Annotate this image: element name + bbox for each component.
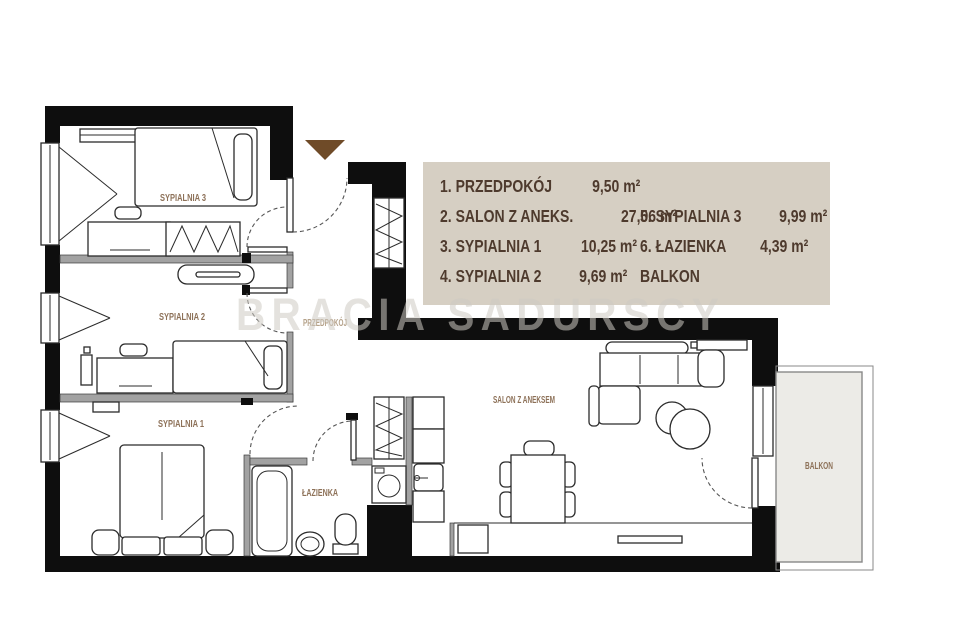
label-sypialnia2: SYPIALNIA 2 <box>159 311 205 323</box>
legend-item: BALKON <box>640 261 808 291</box>
window-balcony <box>753 386 773 456</box>
legend-item-area: 4,39 m² <box>760 236 808 257</box>
nightstand <box>206 530 233 555</box>
jamb-cap-1 <box>242 253 251 263</box>
partition-kitchen <box>406 397 412 505</box>
legend-item-label: 6. ŁAZIENKA <box>640 236 726 257</box>
pillow <box>122 537 160 555</box>
label-salon: SALON Z ANEKSEM <box>493 394 555 406</box>
door-syp2 <box>242 285 287 333</box>
chair <box>115 207 141 219</box>
pouf <box>670 409 710 449</box>
wall-top <box>45 106 287 126</box>
legend-item: 4. SYPIALNIA 2 9,69 m² <box>440 261 626 291</box>
legend-item-label: 2. SALON Z ANEKS. <box>440 206 573 227</box>
label-sypialnia1: SYPIALNIA 1 <box>158 418 204 430</box>
wall-entry-right <box>348 162 406 184</box>
wall-left-4 <box>45 462 60 572</box>
nightstand <box>92 530 119 555</box>
label-przedpokoj: PRZEDPOKÓJ <box>303 316 347 329</box>
door-syp3 <box>247 207 287 252</box>
counter <box>413 429 444 463</box>
wardrobe <box>166 222 240 256</box>
bathtub <box>252 466 292 556</box>
radiator <box>93 402 119 412</box>
partition-bath-top-left <box>250 458 307 465</box>
partition-syp1-bath <box>244 455 250 556</box>
window-syp1 <box>41 410 110 462</box>
legend-col-2: 5. SYPIALNIA 3 9,99 m² 6. ŁAZIENKA 4,39 … <box>640 171 808 291</box>
legend-item: 5. SYPIALNIA 3 9,99 m² <box>640 201 808 231</box>
legend-item-area: 9,99 m² <box>779 206 827 227</box>
furniture-salon <box>454 340 752 543</box>
legend-item: 1. PRZEDPOKÓJ 9,50 m² <box>440 171 626 201</box>
floorplan-drawing: SYPIALNIA 3 SYPIALNIA 2 SYPIALNIA 1 PRZE… <box>0 0 967 624</box>
entrance-door <box>287 178 347 232</box>
legend-spacer <box>640 171 808 201</box>
label-balkon: BALKON <box>805 460 833 472</box>
tv <box>618 536 682 543</box>
toilet <box>335 514 356 545</box>
wall-bath-chunk <box>367 505 412 572</box>
jamb-cap-2 <box>241 398 253 405</box>
wall-salon-right-top <box>752 322 778 386</box>
door-bathroom <box>313 420 356 461</box>
legend-box: 1. PRZEDPOKÓJ 9,50 m² 2. SALON Z ANEKS. … <box>423 162 830 305</box>
desk <box>88 222 170 256</box>
pillow <box>234 134 252 200</box>
door-syp1 <box>250 406 298 454</box>
legend-item-label: 5. SYPIALNIA 3 <box>640 206 741 227</box>
wall-left-3 <box>45 343 60 410</box>
stove <box>458 525 488 553</box>
wall-syp3-right <box>270 106 293 180</box>
radiator-valve <box>84 347 90 353</box>
wall-left-1 <box>45 106 60 143</box>
desk <box>97 358 173 393</box>
legend-item-label: 1. PRZEDPOKÓJ <box>440 176 552 197</box>
dining-set <box>500 441 575 523</box>
partition-syp2-syp1 <box>60 394 293 402</box>
door-balcony <box>702 458 758 508</box>
radiator-valve <box>691 342 697 348</box>
radiator <box>697 340 747 350</box>
legend-item-label: 3. SYPIALNIA 1 <box>440 236 541 257</box>
radiator <box>81 355 92 385</box>
legend-col-1: 1. PRZEDPOKÓJ 9,50 m² 2. SALON Z ANEKS. … <box>440 171 626 291</box>
wardrobe-hall-top <box>374 198 404 268</box>
furniture-syp2 <box>81 265 287 393</box>
legend-item: 2. SALON Z ANEKS. 27,06 m² <box>440 201 626 231</box>
label-sypialnia3: SYPIALNIA 3 <box>160 192 206 204</box>
wall-salon-right-bottom <box>752 506 778 572</box>
dining-table <box>511 455 565 523</box>
legend-item-area: 9,50 m² <box>592 176 640 197</box>
legend-item-area: 9,69 m² <box>579 266 627 287</box>
dresser-handle <box>196 272 240 277</box>
sink <box>296 532 324 556</box>
pillow <box>164 537 202 555</box>
floorplan-page: SYPIALNIA 3 SYPIALNIA 2 SYPIALNIA 1 PRZE… <box>0 0 967 624</box>
legend-item-label: BALKON <box>640 266 700 287</box>
wall-salon-top <box>358 318 778 340</box>
legend-item: 6. ŁAZIENKA 4,39 m² <box>640 231 808 261</box>
entrance-arrow <box>305 140 345 160</box>
kitchen <box>413 397 488 556</box>
label-lazienka: ŁAZIENKA <box>302 487 338 499</box>
wall-bottom <box>45 556 780 572</box>
legend-item-label: 4. SYPIALNIA 2 <box>440 266 541 287</box>
pillow <box>264 346 282 389</box>
fridge <box>413 397 444 429</box>
legend-item: 3. SYPIALNIA 1 10,25 m² <box>440 231 626 261</box>
legend-grid: 1. PRZEDPOKÓJ 9,50 m² 2. SALON Z ANEKS. … <box>440 171 810 291</box>
legend-item-area: 10,25 m² <box>581 236 637 257</box>
counter <box>413 491 444 522</box>
partition-hall-c <box>287 332 293 402</box>
wardrobe-hall-bottom <box>374 397 404 459</box>
counter-divider <box>450 523 454 556</box>
jamb-cap-3 <box>346 413 358 420</box>
chair <box>120 344 147 356</box>
wall-left-2 <box>45 245 60 293</box>
window-syp2 <box>41 293 110 343</box>
chair <box>524 441 554 456</box>
